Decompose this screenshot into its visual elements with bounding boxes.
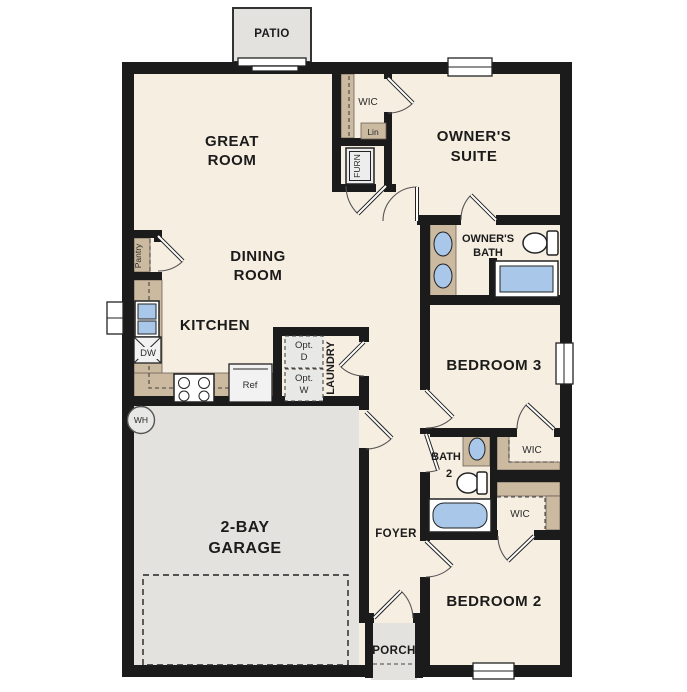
furnace: FURN — [346, 148, 374, 184]
foyer-label: FOYER — [375, 528, 417, 540]
wall-laundry-right-a — [359, 327, 369, 342]
window-owners-suite — [448, 58, 492, 76]
water-heater: WH — [128, 407, 155, 434]
owners-bath-label-2: BATH — [473, 247, 503, 259]
wall-hall-seg1 — [420, 428, 430, 434]
stove — [174, 374, 214, 402]
ref-label: Ref — [243, 380, 258, 391]
wall-exterior-left — [122, 62, 134, 677]
opt-d-label1: Opt. — [295, 340, 313, 351]
dishwasher: DW — [134, 337, 161, 363]
furn-label: FURN — [352, 154, 362, 178]
dw-label: DW — [140, 348, 156, 359]
owner-wic-shelf — [341, 74, 354, 138]
window-bedroom2 — [473, 663, 514, 679]
wall-laundry-left — [273, 327, 282, 405]
wall-porch-right — [415, 623, 423, 678]
bedroom2-label: BEDROOM 2 — [446, 593, 541, 610]
owners-bath-label-1: OWNER'S — [462, 233, 514, 245]
lin-label: Lin — [367, 127, 379, 137]
floor-plan-svg: PATIO — [0, 0, 687, 687]
bath2-sink — [469, 438, 485, 460]
wh-label: WH — [134, 415, 148, 425]
garage-label-1: 2-BAY — [220, 519, 269, 536]
garage-label-2: GARAGE — [208, 540, 281, 557]
window-kitchen — [107, 302, 123, 334]
wall-bed2-top-b — [534, 530, 560, 540]
wall-suite-bath-a — [417, 215, 461, 225]
porch-label: PORCH — [372, 645, 416, 657]
bath2-label-2: 2 — [446, 468, 452, 480]
floor-plan-page: PATIO — [0, 0, 687, 687]
kitchen-label: KITCHEN — [180, 317, 250, 334]
patio-slider-panel1 — [238, 58, 306, 66]
wall-greatroom-wic — [332, 74, 341, 192]
patio-slider-panel2 — [252, 66, 298, 71]
bedroom3-label: BEDROOM 3 — [446, 357, 541, 374]
wall-garage-foyer — [359, 448, 369, 613]
wall-exterior-bottom-left — [122, 665, 365, 677]
wall-pantry-bottom — [122, 272, 162, 280]
window-bedroom3 — [556, 343, 573, 384]
patio-label: PATIO — [254, 28, 289, 40]
owners-suite-label-2: SUITE — [451, 148, 498, 165]
kitchen-sink — [135, 301, 159, 337]
great-room-label-2: ROOM — [208, 152, 257, 169]
owners-suite-label-1: OWNER'S — [437, 128, 512, 145]
bath2-tub — [429, 499, 491, 532]
wall-bath-left — [420, 225, 430, 305]
wic-bed2-shelf-top — [497, 482, 560, 496]
wall-hall-bed3 — [420, 305, 430, 390]
wic-owner-label: WIC — [358, 97, 377, 108]
wall-bed3-bath2 — [430, 428, 517, 437]
great-room-label-1: GREAT — [205, 133, 259, 150]
opt-w-label2: W — [300, 385, 309, 396]
refrigerator: Ref — [229, 364, 272, 402]
pantry-label: Pantry — [133, 243, 143, 268]
wall-wic1-wic2 — [490, 470, 560, 482]
opt-d-label2: D — [301, 352, 308, 363]
patio-area: PATIO — [233, 8, 311, 62]
bath2-label-1: BATH — [431, 451, 461, 463]
wic-bed3-label: WIC — [522, 445, 541, 456]
dining-room-label-1: DINING — [230, 248, 286, 265]
wall-laundry-top — [273, 327, 368, 336]
opt-w-label1: Opt. — [295, 373, 313, 384]
bath2-toilet — [457, 472, 487, 494]
owners-toilet — [523, 231, 558, 255]
owners-sink-1 — [434, 232, 452, 256]
wall-bed3-wic-stub — [554, 428, 560, 437]
wic-bed2-label: WIC — [510, 509, 529, 520]
wall-suite-bath-b — [496, 215, 560, 225]
wall-front-a — [359, 613, 374, 623]
wall-furn-bottom — [332, 184, 376, 192]
dining-room-label-2: ROOM — [234, 267, 283, 284]
wall-exterior-top — [122, 62, 572, 74]
laundry-label: LAUNDRY — [325, 341, 337, 395]
owners-tub — [495, 261, 558, 297]
wic-bed2-shelf-right — [546, 496, 560, 530]
owners-sink-2 — [434, 264, 452, 288]
wall-front-b — [413, 613, 430, 623]
linen-closet: Lin — [361, 123, 386, 139]
